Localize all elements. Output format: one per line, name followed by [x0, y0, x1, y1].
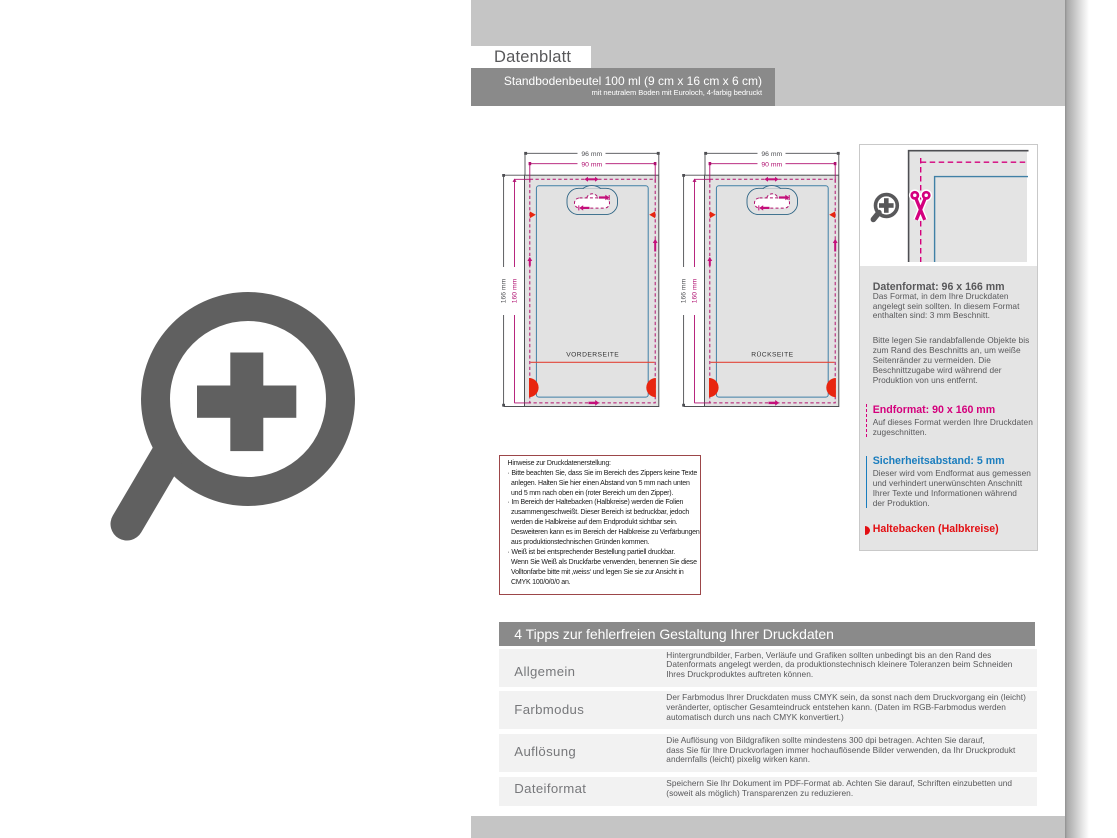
svg-text:VORDERSEITE: VORDERSEITE [566, 352, 619, 359]
svg-text:166 mm: 166 mm [681, 278, 688, 303]
svg-text:96 mm: 96 mm [761, 151, 782, 158]
svg-text:96 mm: 96 mm [581, 151, 602, 158]
svg-text:RÜCKSEITE: RÜCKSEITE [751, 351, 793, 359]
svg-text:90 mm: 90 mm [761, 162, 782, 169]
svg-text:166 mm: 166 mm [501, 278, 508, 303]
svg-text:160 mm: 160 mm [692, 278, 699, 303]
svg-text:90 mm: 90 mm [581, 162, 602, 169]
svg-text:160 mm: 160 mm [512, 278, 519, 303]
